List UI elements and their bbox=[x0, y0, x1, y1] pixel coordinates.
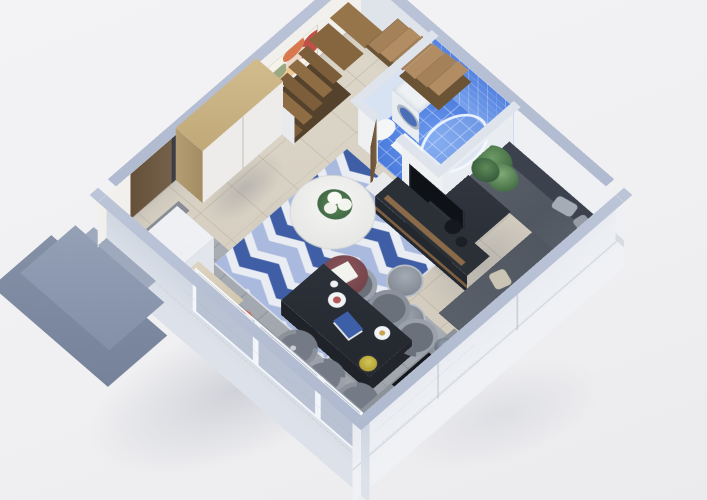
apartment-floor bbox=[106, 20, 615, 461]
wardrobe-door-seam bbox=[242, 116, 243, 169]
plate-food bbox=[331, 295, 342, 305]
render-canvas bbox=[0, 0, 707, 500]
dessert bbox=[378, 329, 386, 336]
